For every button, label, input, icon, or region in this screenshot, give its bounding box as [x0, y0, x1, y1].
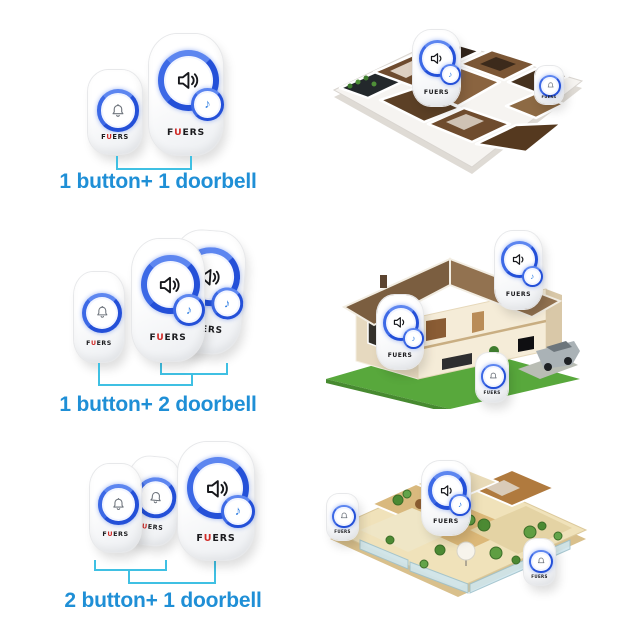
kit-3-scene: FUERS ♪ FUERS — [300, 426, 640, 640]
brand-logo: FUERS — [178, 533, 254, 544]
doorbell-button-device: FUERS — [327, 494, 358, 540]
grouping-bracket — [160, 363, 228, 375]
doorbell-button-device: FUERS — [476, 353, 508, 402]
doorbell-receiver-device: ♪ FUERS — [377, 295, 423, 369]
melody-button: ♪ — [403, 328, 424, 349]
bell-icon — [488, 371, 499, 382]
doorbell-button-device: FUERS — [535, 66, 563, 104]
grouping-bracket — [214, 559, 216, 584]
speaker-icon — [157, 272, 183, 298]
music-note-icon: ♪ — [412, 335, 416, 343]
kit-3-products: FUERS FUERS — [0, 426, 300, 640]
brand-logo: FUERS — [132, 333, 204, 343]
kit-1-products: FUERS ♪ FUERS 1 button+ 1 doorbell — [0, 0, 300, 213]
bell-icon — [94, 304, 111, 321]
doorbell-receiver-device: ♪ FUERS — [413, 30, 460, 106]
melody-button: ♪ — [173, 294, 205, 326]
brand-logo: FUERS — [476, 390, 508, 395]
grouping-bracket — [98, 384, 193, 386]
brand-letters: ERS — [165, 333, 187, 343]
brand-logo: FUERS — [413, 89, 460, 96]
brand-logo: FUERS — [149, 127, 223, 138]
brand-letter-red: U — [156, 333, 164, 343]
doorbell-receiver-device: ♪ FUERS — [132, 239, 204, 361]
brand-logo: FUERS — [495, 291, 542, 298]
bell-icon — [109, 102, 127, 120]
led-ring — [529, 550, 553, 574]
led-ring — [539, 75, 561, 97]
house-cutaway-image — [322, 233, 584, 409]
speaker-icon — [429, 50, 446, 67]
led-ring — [98, 484, 139, 525]
kit-row-1: FUERS ♪ FUERS 1 button+ 1 doorbell — [0, 0, 640, 213]
kit-2-scene: ♪ FUERS ♪ FUERS — [300, 213, 640, 426]
bell-icon — [147, 489, 165, 507]
doorbell-receiver-device: ♪ FUERS — [149, 34, 223, 155]
kit-label: 1 button+ 2 doorbell — [32, 393, 284, 417]
grouping-bracket — [94, 560, 167, 571]
brand-logo: FUERS — [422, 518, 470, 525]
music-note-icon: ♪ — [458, 501, 462, 509]
led-ring — [332, 505, 356, 529]
brand-logo: FUERS — [88, 133, 142, 141]
doorbell-button-device: FUERS — [74, 272, 124, 362]
kit-row-3: FUERS FUERS — [0, 426, 640, 640]
led-ring — [82, 293, 122, 333]
doorbell-receiver-device: ♪ FUERS — [422, 461, 470, 535]
kit-2-products: FUERS ♪ FUERS — [0, 213, 300, 426]
brand-logo: FUERS — [90, 530, 141, 538]
brand-letters: ERS — [113, 530, 129, 538]
doorbell-button-device: FUERS — [88, 70, 142, 154]
bell-icon — [339, 511, 349, 521]
led-ring — [481, 364, 505, 388]
brand-letters: ERS — [182, 127, 205, 138]
brand-letters: ERS — [212, 533, 235, 544]
kit-1-scene: ♪ FUERS FUERS — [300, 0, 640, 213]
music-note-icon: ♪ — [186, 304, 192, 316]
melody-button: ♪ — [221, 495, 254, 528]
melody-button: ♪ — [440, 64, 461, 85]
doorbell-receiver-device: ♪ FUERS — [495, 231, 542, 309]
music-note-icon: ♪ — [235, 505, 241, 518]
doorbell-button-device: FUERS — [524, 539, 555, 585]
bell-icon — [546, 81, 555, 90]
brand-letters: ERS — [112, 133, 129, 141]
brand-letters: ERS — [147, 523, 163, 532]
doorbell-receiver-device: ♪ FUERS — [178, 442, 254, 560]
music-note-icon: ♪ — [530, 273, 534, 281]
led-ring — [97, 89, 140, 132]
grouping-bracket — [116, 156, 192, 170]
brand-logo: FUERS — [377, 352, 423, 359]
melody-button: ♪ — [522, 266, 543, 287]
brand-logo: FUERS — [74, 340, 124, 347]
bell-icon — [110, 496, 127, 513]
bell-icon — [536, 556, 546, 566]
melody-button: ♪ — [449, 494, 470, 515]
melody-button: ♪ — [191, 88, 224, 121]
speaker-icon — [511, 251, 528, 268]
music-note-icon: ♪ — [448, 71, 452, 79]
doorbell-button-device: FUERS — [90, 464, 141, 552]
grouping-bracket — [98, 363, 100, 386]
melody-button: ♪ — [210, 286, 244, 320]
brand-logo: FUERS — [524, 574, 555, 579]
kit-label: 1 button+ 1 doorbell — [32, 170, 284, 194]
music-note-icon: ♪ — [224, 297, 231, 310]
brand-letter: F — [196, 533, 203, 544]
brand-logo: FUERS — [535, 95, 563, 99]
speaker-icon — [392, 314, 409, 331]
kit-row-2: FUERS ♪ FUERS — [0, 213, 640, 426]
kit-label: 2 button+ 1 doorbell — [36, 589, 290, 613]
music-note-icon: ♪ — [204, 98, 210, 111]
grouping-bracket — [128, 582, 216, 584]
product-kits-collage: FUERS ♪ FUERS 1 button+ 1 doorbell — [0, 0, 640, 640]
brand-letters: ERS — [97, 340, 112, 347]
brand-logo: FUERS — [327, 529, 358, 534]
